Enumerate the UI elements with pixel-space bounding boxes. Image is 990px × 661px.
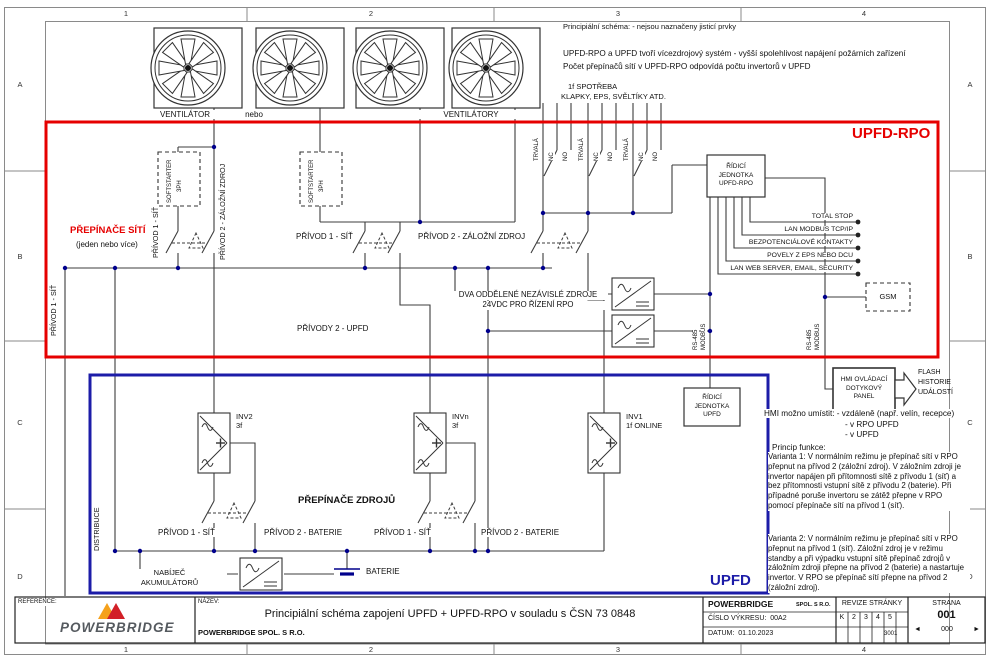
page-next-icon[interactable]: ► [973, 626, 980, 633]
row-label-right-c: C [962, 418, 978, 427]
principle-variant1: Varianta 1: V normálním režimu je přepín… [768, 452, 970, 511]
col-label-bottom-3: 3 [598, 645, 638, 654]
upfd-feed2-label-1: PŘÍVOD 2 - BATERIE [264, 528, 342, 537]
upfd-zone-title: UPFD [710, 572, 751, 589]
drawing-no-label: ČÍSLO VÝKRESU: 00A2 [708, 615, 787, 623]
inv1-label: INV11f ONLINE [626, 413, 662, 430]
battery-symbol [334, 569, 360, 574]
rs485-label-2a: RS-485 [807, 330, 813, 350]
contact-nc-label-3: NC [639, 152, 645, 161]
contact-nc-label-1: NC [549, 152, 555, 161]
contact-permanent-label-1: TRVALÁ [534, 138, 540, 161]
schematic-page: 1 2 3 4 1 2 3 4 A B C D A B C D Principi… [0, 0, 990, 661]
row-label-left-c: C [12, 418, 28, 427]
component-boxes [158, 152, 916, 590]
softstarter1-label-line2: 3PH [177, 180, 183, 192]
output-lan-modbus: LAN MODBUS TCP/IP [784, 226, 853, 233]
output-total-stop: TOTAL STOP [812, 213, 853, 220]
consumers-label-2: KLAPKY, EPS, SVĚLTÍKY ATD. [561, 93, 666, 102]
date-label: DATUM: 01.10.2023 [708, 630, 773, 638]
inverter-symbol-inv1 [588, 413, 620, 473]
upfd-feed1-label-2: PŘÍVOD 1 - SÍŤ [374, 528, 431, 537]
source-switch-title: PŘEPÍNAČE ZDROJŮ [298, 496, 395, 507]
invn-label: INVn3f [452, 413, 469, 430]
consumers-label-1: 1f SPOTŘEBA [568, 83, 617, 92]
fan-symbol-3 [353, 28, 444, 108]
dc-psu-symbol-2 [612, 315, 654, 347]
hmi-line2: DOTYKOVÝ [846, 385, 882, 393]
rev-cell-4: 4 [872, 614, 884, 622]
hmi-placement-note: HMI možno umístit: - vzdáleně (např. vel… [764, 409, 954, 418]
col-label-top-4: 4 [844, 9, 884, 18]
upfd-control-unit-label: ŘÍDICÍ JEDNOTKA UPFD [684, 388, 740, 426]
hmi-line1: HMI OVLÁDACÍ [841, 376, 888, 384]
psu-note-2: 24VDC PRO ŘÍZENÍ RPO [448, 301, 608, 310]
row-label-left-b: B [12, 252, 28, 261]
rev-cell2-5: 3001 [884, 631, 896, 638]
rev-cell-1: K [836, 614, 848, 622]
contact-no-label-1: NO [563, 152, 569, 161]
multi-source-note-1: UPFD-RPO a UPFD tvoří vícezdrojový systé… [563, 49, 906, 58]
charger-label-2: AKUMULÁTORŮ [112, 579, 227, 588]
battery-label: BATERIE [366, 567, 400, 576]
softstarter2-label-line2: 3PH [319, 180, 325, 192]
logo-text: POWERBRIDGE [60, 620, 175, 636]
rpo-ctrl-line3: UPFD-RPO [719, 180, 753, 188]
fan-label-or: nebo [234, 110, 274, 119]
softstarter-box-1 [158, 152, 200, 206]
battery-charger-symbol [240, 558, 282, 590]
schema-note: Principiální schéma: - nejsou naznačeny … [563, 23, 736, 32]
fan-label-single: VENTILÁTOR [140, 110, 230, 119]
page-prev-icon[interactable]: ◄ [914, 626, 921, 633]
principle-title: Princip funkce: [772, 443, 826, 452]
row-label-left-d: D [12, 572, 28, 581]
feed2-vertical-label-1: PŘÍVOD 2 - ZÁLOŽNÍ ZDROJ [219, 164, 226, 260]
company-name: POWERBRIDGE [708, 600, 773, 610]
fan-label-plural: VENTILÁTORY [411, 110, 531, 119]
page-nav: ◄ 000 ► [914, 626, 980, 633]
rs485-label-1b: MODBUS [701, 324, 707, 350]
fan-symbol-1 [151, 28, 242, 108]
revisions-label: REVIZE STRÁNKY [836, 600, 908, 608]
rs485-label-2b: MODBUS [815, 324, 821, 350]
upfd-feed2-label-2: PŘÍVOD 2 - BATERIE [481, 528, 559, 537]
upfd-ctrl-line2: JEDNOTKA [695, 403, 730, 411]
softstarter-box-2 [300, 152, 342, 206]
feed2-label-mid: PŘÍVOD 2 - ZÁLOŽNÍ ZDROJ [418, 232, 525, 241]
hmi-line3: PANEL [854, 393, 875, 401]
rpo-zone-title: UPFD-RPO [852, 125, 930, 142]
output-eps-dcu: POVELY Z EPS NEBO DCU [767, 252, 853, 259]
rev-cell-5: 5 [884, 614, 896, 622]
row-label-left-a: A [12, 80, 28, 89]
powerbridge-logo-icon [98, 603, 125, 619]
upfd-ctrl-line1: ŘÍDICÍ [702, 394, 722, 402]
rpo-control-unit-label: ŘÍDICÍ JEDNOTKA UPFD-RPO [707, 155, 765, 197]
col-label-top-3: 3 [598, 9, 638, 18]
rs485-label-1a: RS-485 [693, 330, 699, 350]
feed1-label-mid: PŘÍVOD 1 - SÍŤ [296, 232, 353, 241]
dc-psu-symbol-1 [612, 278, 654, 310]
terminal-dots [856, 220, 861, 277]
gsm-label: GSM [866, 283, 910, 311]
col-label-bottom-1: 1 [106, 645, 146, 654]
drawing-no-value: 00A2 [770, 615, 786, 622]
feed1-vertical-label-1: PŘÍVOD 1 - SÍŤ [152, 207, 159, 258]
upfd-ctrl-line3: UPFD [703, 411, 721, 419]
feeds-upfd-label: PŘÍVODY 2 - UPFD [297, 324, 368, 333]
softstarter1-label-line1: SOFTSTARTER [167, 160, 173, 203]
contact-no-label-3: NO [653, 152, 659, 161]
date-value: 01.10.2023 [738, 630, 773, 637]
hmi-placement-note-3: - v UPFD [845, 430, 879, 439]
fan-symbol-4 [449, 28, 540, 108]
upfd-boundary [90, 375, 768, 593]
rpo-ctrl-line2: JEDNOTKA [719, 172, 754, 180]
contact-no-label-2: NO [608, 152, 614, 161]
inverter-symbol-invn [414, 413, 446, 473]
flash-arrow-icon [895, 373, 916, 405]
inverter-symbol-inv2 [198, 413, 230, 473]
page-nav-value: 000 [941, 626, 953, 633]
col-label-bottom-4: 4 [844, 645, 884, 654]
reference-label: REFERENCE: [18, 599, 57, 606]
upfd-feed1-label-1: PŘÍVOD 1 - SÍŤ [158, 528, 215, 537]
company-full: POWERBRIDGE SPOL. S R.O. [198, 629, 305, 638]
flash-label-2: HISTORIE [918, 379, 951, 387]
flash-label-3: UDÁLOSTÍ [918, 389, 953, 397]
col-label-top-1: 1 [106, 9, 146, 18]
nazev-label: NÁZEV: [198, 599, 219, 606]
inv2-label: INV23f [236, 413, 253, 430]
fan-symbol-2 [253, 28, 344, 108]
net-switch-title: PŘEPÍNAČE SÍTÍ [70, 226, 146, 237]
contact-permanent-label-2: TRVALÁ [579, 138, 585, 161]
rpo-ctrl-line1: ŘÍDICÍ [726, 163, 746, 171]
output-lan-web: LAN WEB SERVER, EMAIL, SECURITY [730, 265, 853, 272]
page-label: STRANA [908, 600, 985, 608]
col-label-bottom-2: 2 [351, 645, 391, 654]
multi-source-note-2: Počet přepínačů sítí v UPFD-RPO odpovídá… [563, 62, 811, 71]
rev-cell-2: 2 [848, 614, 860, 622]
distribution-label: DISTRIBUCE [93, 507, 100, 551]
col-label-top-2: 2 [351, 9, 391, 18]
feed1-vertical-label-left: PŘÍVOD 1 - SÍŤ [50, 285, 57, 336]
contact-nc-label-2: NC [594, 152, 600, 161]
net-switch-subtitle: (jeden nebo více) [76, 240, 138, 249]
row-label-right-b: B [962, 252, 978, 261]
principle-variant2: Varianta 2: V normálním režimu je přepín… [768, 534, 970, 593]
drawing-title: Principiální schéma zapojení UPFD + UPFD… [200, 608, 700, 621]
rev-cell-3: 3 [860, 614, 872, 622]
hmi-placement-note-2: - v RPO UPFD [845, 420, 899, 429]
psu-note-1: DVA ODDĚLENÉ NEZÁVISLÉ ZDROJE [448, 291, 608, 300]
row-label-right-a: A [962, 80, 978, 89]
hmi-panel-label: HMI OVLÁDACÍ DOTYKOVÝ PANEL [833, 368, 895, 410]
contact-permanent-label-3: TRVALÁ [624, 138, 630, 161]
output-dry-contacts: BEZPOTENCIÁLOVÉ KONTAKTY [749, 239, 853, 246]
charger-label-1: NABÍJEČ [112, 569, 227, 578]
page-number: 001 [908, 609, 985, 622]
flash-label-1: FLASH [918, 369, 941, 377]
gsm-text: GSM [879, 292, 896, 302]
softstarter2-label-line1: SOFTSTARTER [309, 160, 315, 203]
company-suffix: SPOL. S R.O. [796, 602, 831, 608]
